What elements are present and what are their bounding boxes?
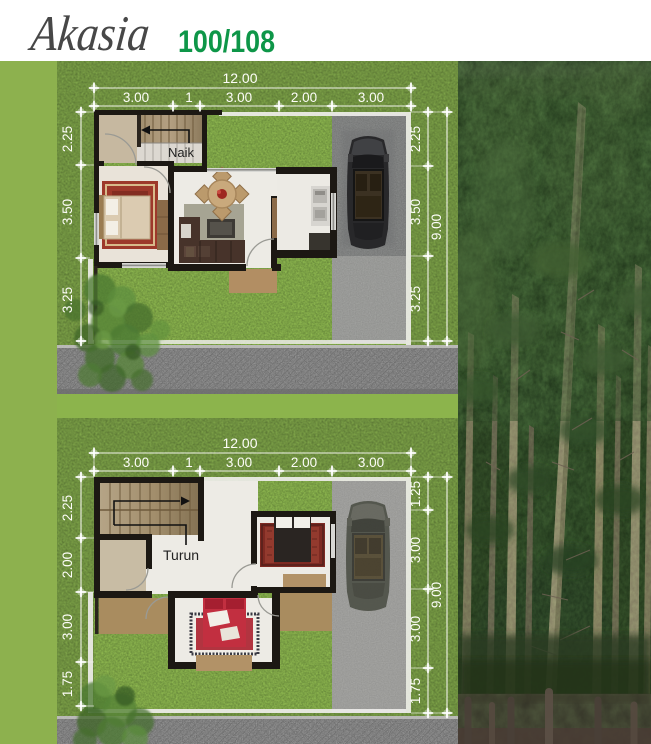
svg-text:1.75: 1.75 xyxy=(408,678,423,704)
svg-text:3.00: 3.00 xyxy=(358,455,384,470)
svg-text:1: 1 xyxy=(185,90,193,105)
svg-text:3.25: 3.25 xyxy=(60,287,75,313)
svg-text:2.00: 2.00 xyxy=(291,455,317,470)
svg-text:3.50: 3.50 xyxy=(60,199,75,225)
svg-text:3.00: 3.00 xyxy=(226,455,252,470)
svg-text:100/108: 100/108 xyxy=(178,23,275,59)
svg-text:Naik: Naik xyxy=(168,145,195,160)
svg-text:2.00: 2.00 xyxy=(291,90,317,105)
svg-text:3.50: 3.50 xyxy=(408,199,423,225)
svg-text:3.00: 3.00 xyxy=(226,90,252,105)
svg-text:3.25: 3.25 xyxy=(408,286,423,312)
svg-text:3.00: 3.00 xyxy=(408,537,423,563)
svg-text:Turun: Turun xyxy=(163,547,199,563)
svg-text:2.25: 2.25 xyxy=(60,495,75,521)
svg-text:2.25: 2.25 xyxy=(408,126,423,152)
svg-text:1.75: 1.75 xyxy=(60,671,75,697)
svg-text:9.00: 9.00 xyxy=(429,582,444,608)
svg-text:9.00: 9.00 xyxy=(429,214,444,240)
svg-text:3.00: 3.00 xyxy=(60,614,75,640)
svg-text:3.00: 3.00 xyxy=(358,90,384,105)
svg-text:3.00: 3.00 xyxy=(408,616,423,642)
svg-text:Akasia: Akasia xyxy=(26,5,152,61)
svg-text:12.00: 12.00 xyxy=(222,435,257,451)
svg-text:3.00: 3.00 xyxy=(123,90,149,105)
svg-text:3.00: 3.00 xyxy=(123,455,149,470)
svg-text:1: 1 xyxy=(185,455,193,470)
svg-text:1.25: 1.25 xyxy=(408,481,423,507)
svg-text:2.00: 2.00 xyxy=(60,552,75,578)
svg-text:2.25: 2.25 xyxy=(60,126,75,152)
svg-text:12.00: 12.00 xyxy=(222,70,257,86)
